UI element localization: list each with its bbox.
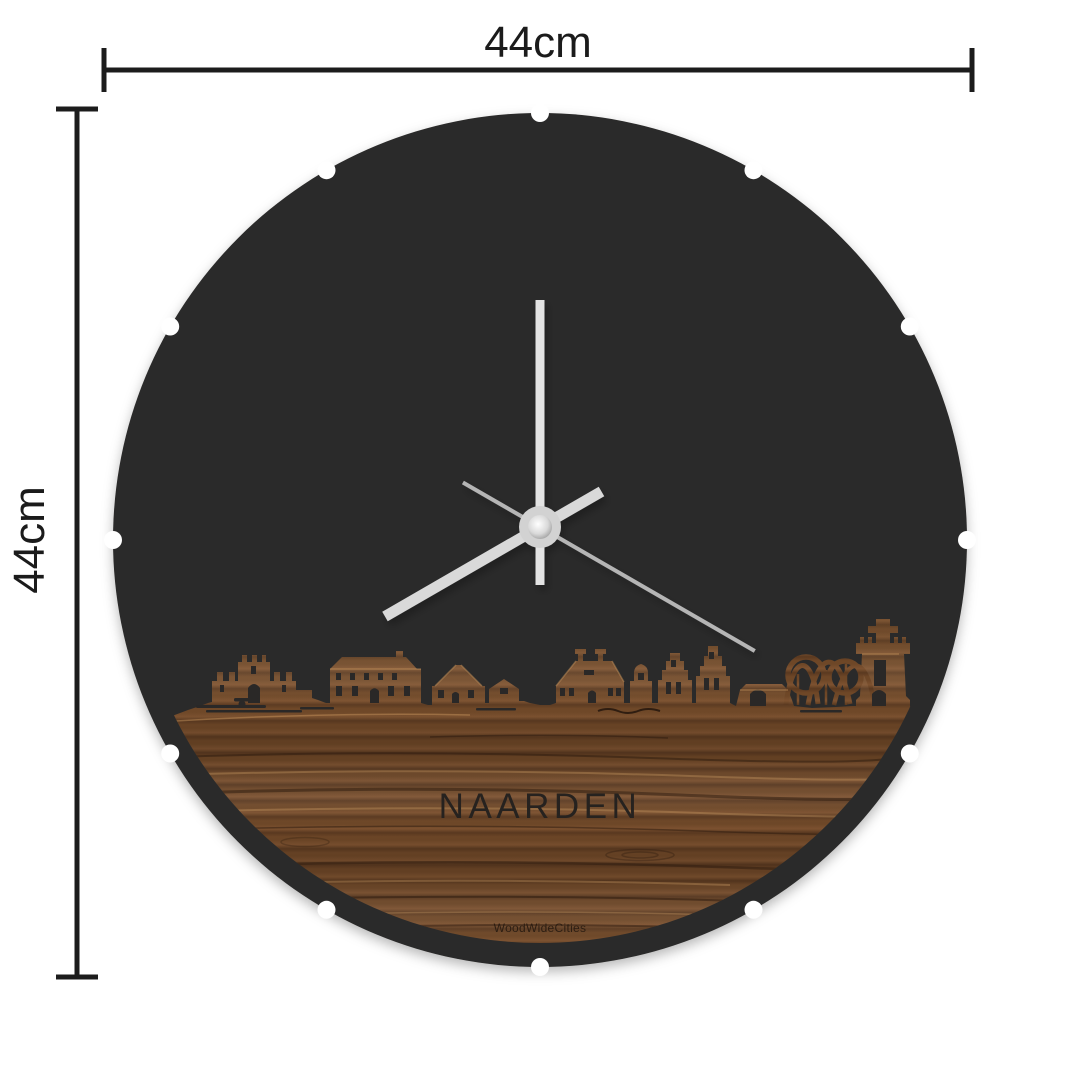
width-dimension-label: 44cm [484,18,592,67]
hour-notch [531,958,549,976]
hour-notch [745,901,763,919]
cannon-silhouette [234,698,258,702]
hour-notch [318,901,336,919]
product-dimension-diagram: 44cm 44cm [0,0,1080,1080]
hour-notch [901,318,919,336]
hour-notch [104,531,122,549]
hour-notch [161,318,179,336]
hour-notch [745,161,763,179]
height-dimension-line [56,109,98,977]
hub-cap [528,515,552,539]
manor-door-arch [370,688,379,703]
diagram-canvas: 44cm 44cm [0,0,1080,1080]
hour-notch [531,104,549,122]
hour-notch [901,745,919,763]
hour-notch [318,161,336,179]
hour-notch [958,531,976,549]
city-name-cutout: NAARDEN [439,787,642,826]
bridge-arch [750,690,766,707]
hour-notch [161,745,179,763]
brand-engraving: WoodWideCities [494,921,587,935]
height-dimension-label: 44cm [5,486,54,594]
